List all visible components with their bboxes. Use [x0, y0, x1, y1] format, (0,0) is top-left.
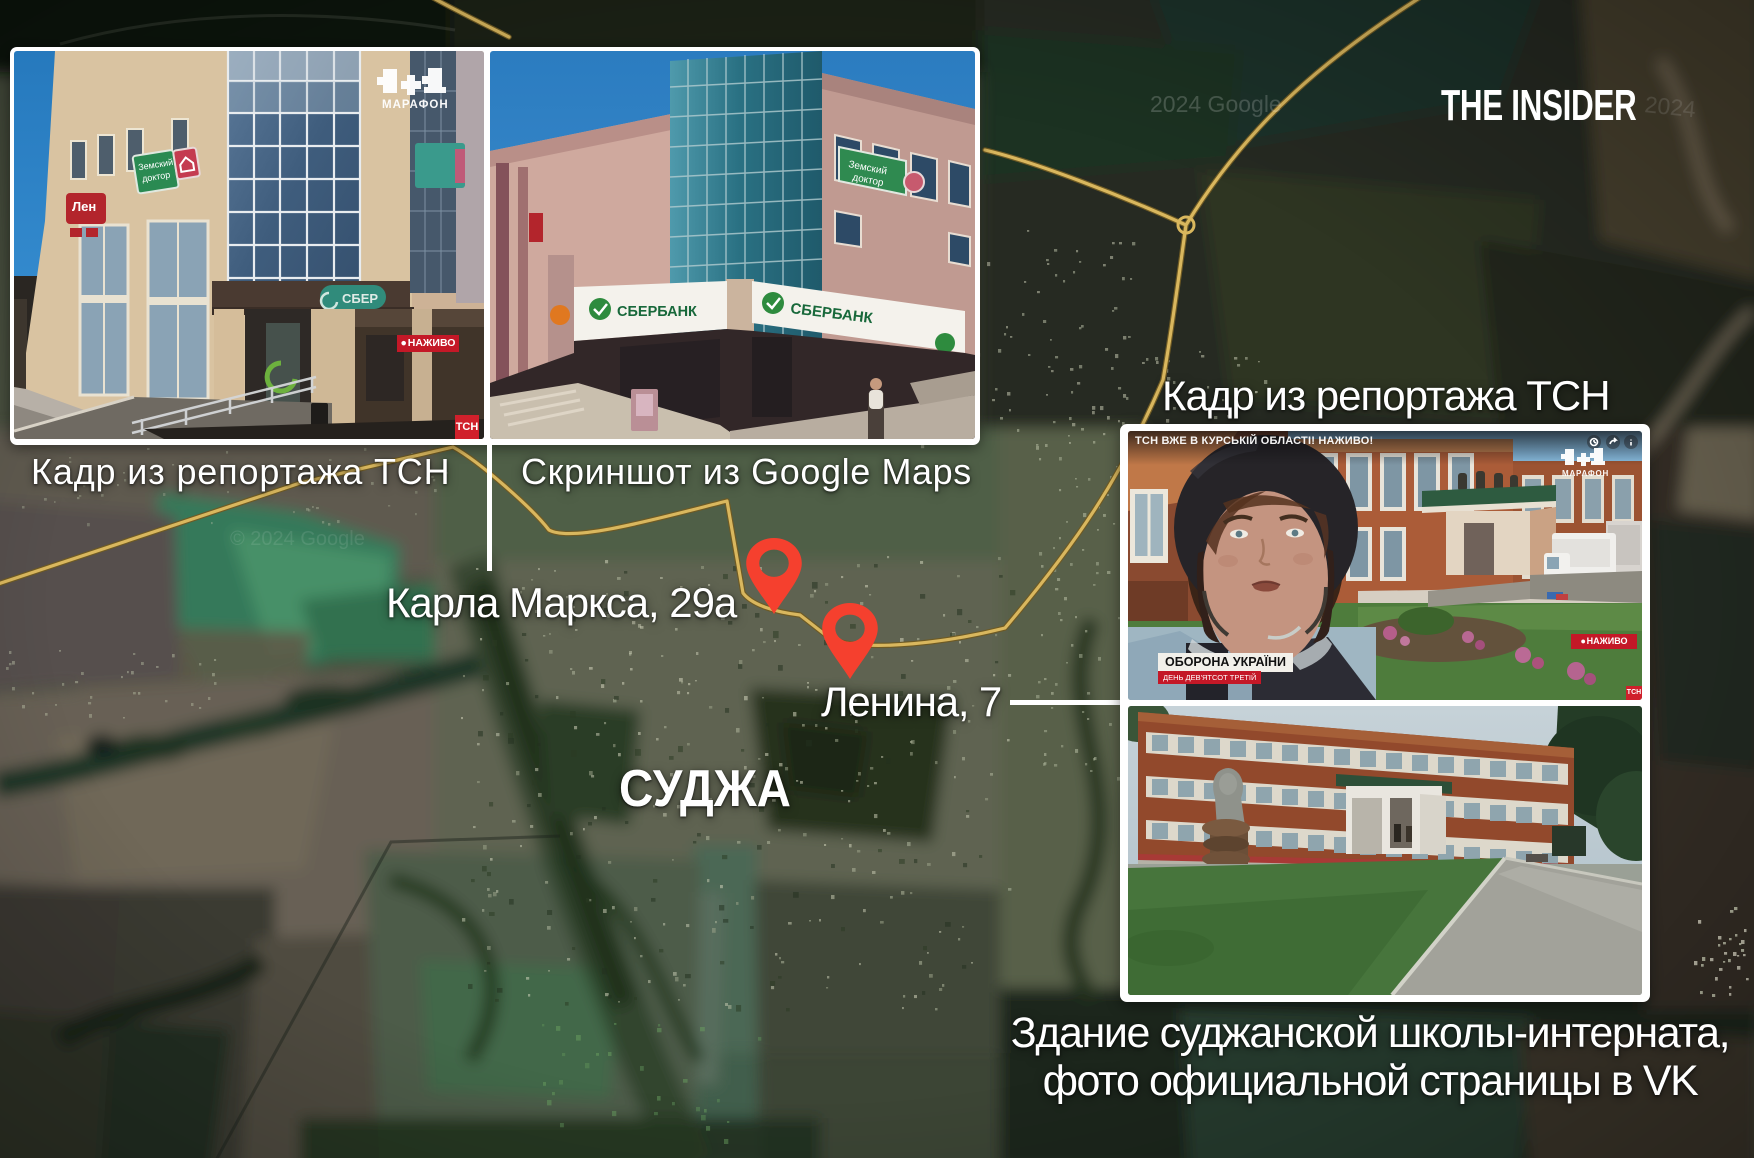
svg-text:МАРАФОН: МАРАФОН — [1562, 469, 1609, 478]
svg-text:МАРАФОН: МАРАФОН — [382, 99, 449, 111]
svg-text:СБЕРБАНК: СБЕРБАНК — [617, 304, 697, 320]
